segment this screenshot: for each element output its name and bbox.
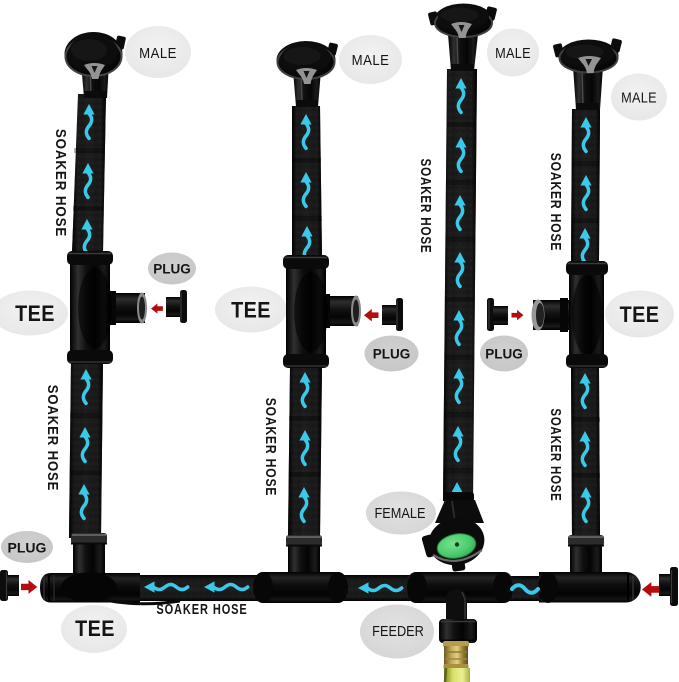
svg-text:MALE: MALE [139, 44, 177, 61]
svg-text:MALE: MALE [495, 45, 531, 61]
svg-text:TEE: TEE [75, 617, 115, 641]
svg-text:TEE: TEE [231, 299, 271, 323]
svg-text:PLUG: PLUG [153, 262, 191, 277]
svg-text:PLUG: PLUG [485, 347, 523, 362]
svg-text:FEMALE: FEMALE [375, 504, 426, 521]
svg-text:TEE: TEE [620, 303, 660, 327]
svg-text:PLUG: PLUG [373, 347, 411, 362]
svg-text:SOAKER HOSE: SOAKER HOSE [263, 398, 279, 497]
svg-text:SOAKER HOSE: SOAKER HOSE [548, 408, 565, 501]
svg-text:SOAKER HOSE: SOAKER HOSE [52, 129, 69, 237]
svg-text:PLUG: PLUG [8, 540, 47, 556]
svg-text:SOAKER HOSE: SOAKER HOSE [45, 385, 62, 492]
svg-text:SOAKER HOSE: SOAKER HOSE [548, 153, 564, 252]
svg-text:FEEDER: FEEDER [372, 622, 424, 639]
svg-text:SOAKER HOSE: SOAKER HOSE [418, 159, 435, 254]
svg-text:TEE: TEE [15, 302, 55, 326]
svg-text:MALE: MALE [352, 51, 390, 68]
svg-text:MALE: MALE [621, 90, 657, 106]
